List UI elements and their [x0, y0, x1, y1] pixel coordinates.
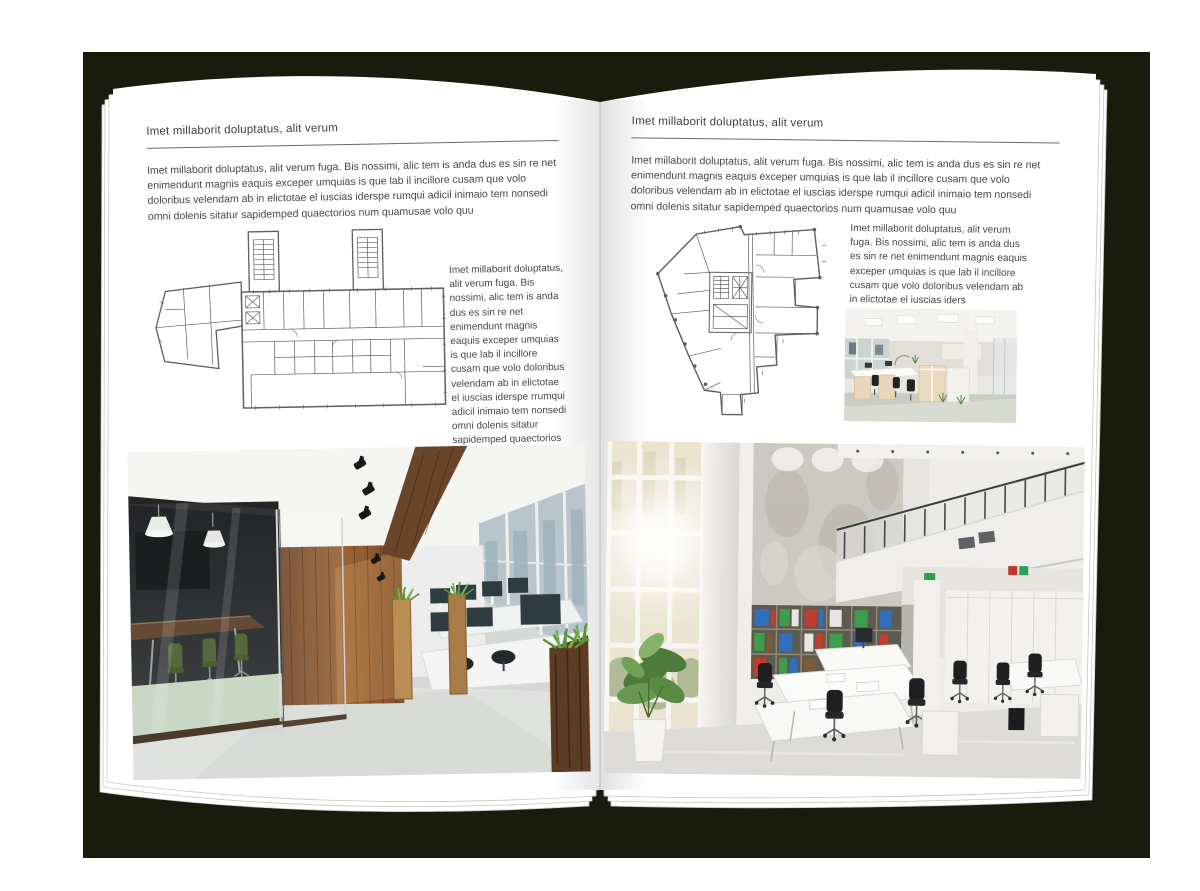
floorplan-drawing-left	[152, 226, 448, 424]
page-title: Imet millaborit doluptatus, alit verum	[146, 118, 566, 138]
column	[700, 442, 740, 774]
header-rule	[631, 137, 1059, 143]
photo-office-openspace	[844, 308, 1017, 423]
stair-tower	[248, 231, 279, 292]
side-paragraph: Imet millaborit doluptatus, alit verum f…	[449, 262, 569, 463]
photo-office-loft	[126, 443, 591, 780]
side-paragraph: Imet millaborit doluptatus, alit verum f…	[849, 222, 1032, 309]
right-page: Imet millaborit doluptatus, alit verum I…	[593, 53, 1104, 799]
stair-tower	[352, 229, 383, 290]
intro-paragraph: Imet millaborit doluptatus, alit verum f…	[631, 153, 1048, 219]
header-rule	[147, 140, 559, 149]
page-title: Imet millaborit doluptatus, alit verum	[632, 115, 1052, 132]
floorplan-drawing-right	[642, 213, 839, 420]
intro-paragraph: Imet millaborit doluptatus, alit verum f…	[147, 156, 560, 225]
magazine-mockup-stage: Imet millaborit doluptatus, alit verum I…	[0, 0, 1200, 891]
glass-meeting-room	[128, 492, 347, 744]
left-page: Imet millaborit doluptatus, alit verum I…	[93, 55, 607, 799]
photo-office-atrium	[604, 441, 1085, 779]
